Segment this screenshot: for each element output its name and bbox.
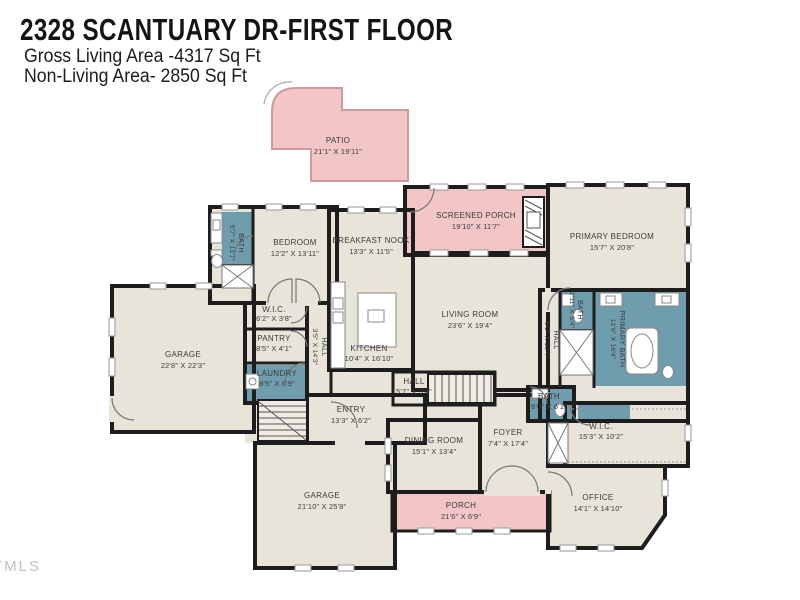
window <box>598 545 614 551</box>
fireplace <box>523 197 544 247</box>
window <box>560 545 576 551</box>
label-kitchen: KITCHEN10'4" X 16'10" <box>345 344 394 363</box>
sink <box>606 296 615 303</box>
window <box>685 244 691 262</box>
window <box>648 182 666 188</box>
sink <box>662 296 671 303</box>
window <box>418 528 434 534</box>
window <box>109 318 115 336</box>
label-pantry: PANTRY8'5" X 4'1" <box>256 334 292 353</box>
window <box>566 182 584 188</box>
floor-plan-drawing: PATIO21'1" X 19'11" SCREENED PORCH19'10"… <box>0 0 800 600</box>
toilet <box>663 366 674 379</box>
kitchen-range <box>333 312 343 323</box>
window <box>385 438 391 454</box>
room-garage-left <box>112 286 254 432</box>
tub-basin <box>631 334 653 368</box>
gap-front-door <box>484 489 540 496</box>
gap-garage-bottom <box>335 440 365 446</box>
window <box>338 565 354 571</box>
window <box>510 250 528 256</box>
window <box>385 465 391 481</box>
window <box>222 204 238 210</box>
window <box>295 565 311 571</box>
window <box>494 528 510 534</box>
window <box>685 425 691 441</box>
window <box>662 480 668 496</box>
sink <box>213 220 220 230</box>
window <box>685 208 691 226</box>
firebox <box>527 212 540 228</box>
window <box>430 250 448 256</box>
window <box>468 184 486 190</box>
washer-door <box>249 378 256 385</box>
linen-closet <box>578 405 630 419</box>
window <box>456 528 472 534</box>
label-laundry: LAUNDRY8'5" X 6'9" <box>257 369 298 388</box>
area-patio <box>272 88 408 181</box>
kitchen-counter <box>331 282 345 368</box>
window <box>300 204 316 210</box>
floor-plan-page: 2328 SCANTUARY DR-FIRST FLOOR Gross Livi… <box>0 0 800 600</box>
window <box>196 283 212 289</box>
window <box>150 283 166 289</box>
kitchen-sink <box>333 298 343 309</box>
toilet <box>212 255 223 268</box>
window <box>430 184 448 190</box>
window <box>348 207 364 213</box>
window <box>470 250 488 256</box>
window <box>506 184 524 190</box>
window <box>380 207 396 213</box>
window <box>109 358 115 376</box>
window <box>266 204 282 210</box>
island-cooktop <box>368 310 384 322</box>
window <box>606 182 624 188</box>
